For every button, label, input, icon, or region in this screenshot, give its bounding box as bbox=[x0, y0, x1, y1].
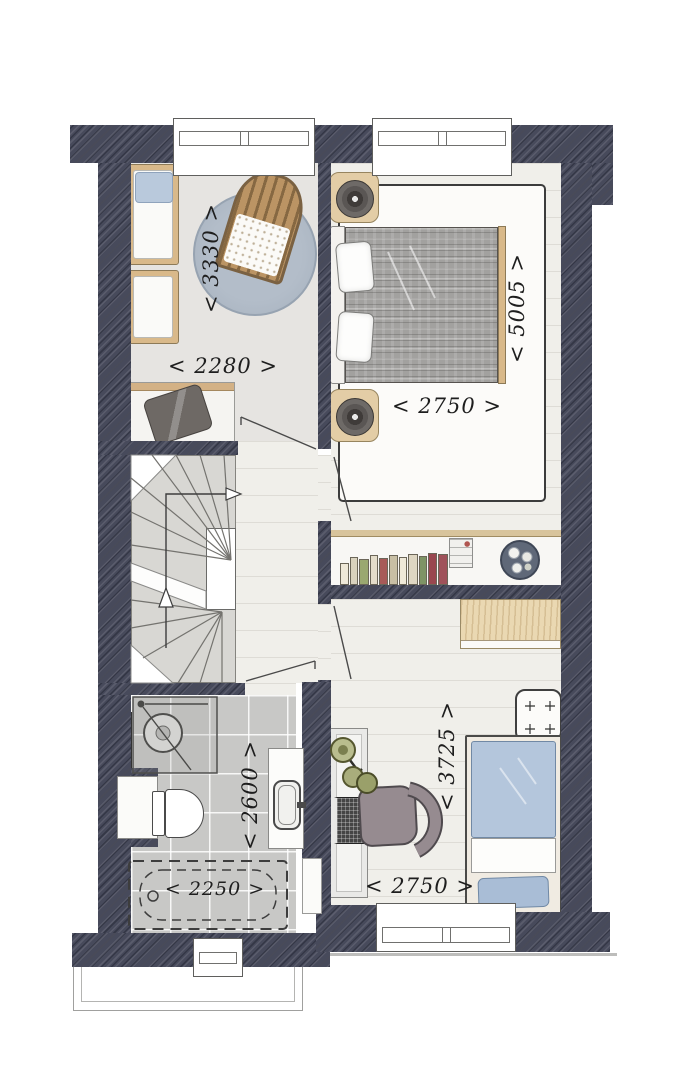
window-master-mullion bbox=[438, 131, 447, 146]
book-row bbox=[340, 553, 448, 585]
dim-bathtub-width: < 2250 > bbox=[160, 878, 270, 902]
office-chair bbox=[357, 785, 418, 848]
master-door-threshold bbox=[318, 455, 331, 521]
stair-void bbox=[206, 528, 236, 610]
wall-nursery-south bbox=[98, 441, 238, 455]
crib-blanket bbox=[223, 213, 291, 277]
sideboard-shelf bbox=[331, 530, 561, 587]
wall-bedroom3-south-left bbox=[316, 905, 378, 952]
wall-top bbox=[70, 125, 613, 163]
window-nursery bbox=[173, 118, 315, 176]
wall-right bbox=[561, 163, 592, 917]
dim-bedroom3-width: < 2750 > bbox=[365, 874, 475, 898]
bedroom3-door-threshold bbox=[318, 604, 331, 680]
picture-frame bbox=[449, 538, 473, 568]
dim-master-width: < 2750 > bbox=[392, 394, 502, 418]
roof-outline-inner bbox=[81, 966, 295, 1002]
nursery-bed-pillow bbox=[135, 172, 173, 203]
wall-right-cap bbox=[592, 163, 613, 205]
floor-plan-canvas: < 3330 > < 2280 > < 5005 > < 2750 > < 26… bbox=[0, 0, 683, 1080]
window-bathroom-frame bbox=[199, 952, 237, 964]
faucet bbox=[297, 802, 306, 808]
window-nursery-mullion bbox=[240, 131, 249, 146]
table-lamp-top bbox=[336, 180, 374, 218]
wall-bathroom-north bbox=[98, 683, 245, 695]
wardrobe bbox=[460, 599, 561, 649]
wardrobe-front bbox=[461, 640, 560, 648]
master-pillow-1 bbox=[335, 241, 375, 294]
window-master bbox=[372, 118, 512, 176]
dim-nursery-width: < 2280 > bbox=[168, 354, 278, 378]
nursery-daybed-mattress bbox=[133, 276, 173, 338]
wall-bedroom3-south-cap bbox=[515, 912, 610, 952]
dim-bathroom-depth: < 2600 > bbox=[238, 740, 262, 850]
window-bedroom3 bbox=[376, 903, 516, 952]
toilet-cistern bbox=[152, 791, 165, 836]
wall-recess bbox=[302, 858, 322, 914]
nursery-door-threshold bbox=[238, 441, 318, 455]
wall-left bbox=[98, 163, 131, 967]
table-lamp-bottom bbox=[336, 398, 374, 436]
window-bathroom bbox=[193, 938, 243, 977]
wall-mid-vertical-b bbox=[318, 521, 331, 604]
wall-mid-vertical-a bbox=[318, 163, 331, 449]
dim-master-depth: < 5005 > bbox=[505, 253, 529, 363]
dim-bedroom3-depth: < 3725 > bbox=[435, 701, 459, 811]
sideboard-front-edge bbox=[331, 530, 561, 537]
nightstand-top bbox=[329, 172, 379, 223]
window-bedroom3-mullion bbox=[442, 927, 451, 943]
nightstand-bottom bbox=[329, 389, 379, 442]
bathroom-door-threshold bbox=[245, 683, 296, 695]
nursery-daybed bbox=[127, 270, 179, 344]
hallway-floor bbox=[236, 441, 318, 683]
wall-master-bedroom3 bbox=[331, 585, 561, 599]
exterior-shadow-line bbox=[330, 953, 617, 956]
nursery-bed bbox=[127, 164, 179, 265]
bedroom3-duvet bbox=[471, 741, 556, 838]
dim-nursery-depth: < 3330 > bbox=[199, 203, 223, 313]
bedroom3-sheet bbox=[471, 838, 556, 873]
master-pillow-2 bbox=[335, 311, 374, 363]
